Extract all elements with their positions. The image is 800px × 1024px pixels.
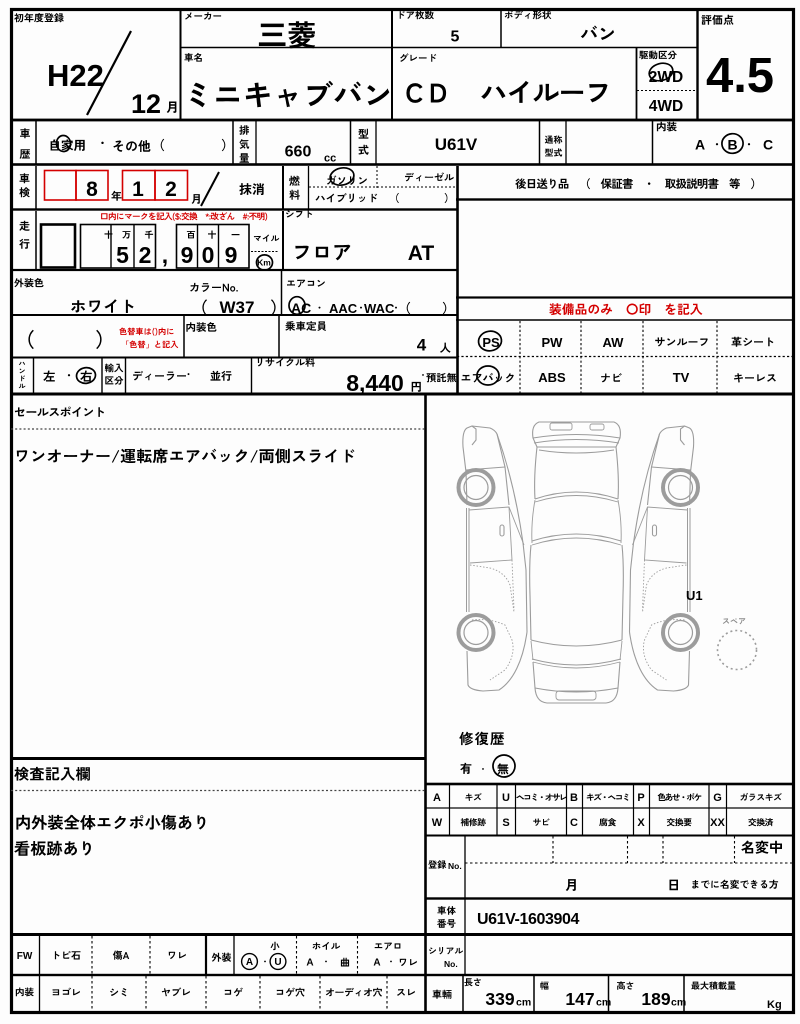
svg-text:8,440: 8,440 — [346, 370, 404, 396]
svg-text:C: C — [763, 137, 773, 153]
svg-text:660: 660 — [285, 144, 312, 161]
svg-text:U61V-1603904: U61V-1603904 — [477, 911, 579, 928]
svg-text:P: P — [637, 792, 644, 804]
svg-text:TV: TV — [673, 370, 690, 385]
svg-text:AT: AT — [408, 242, 435, 265]
svg-text:4.5: 4.5 — [706, 49, 774, 103]
svg-text:1: 1 — [132, 178, 144, 201]
svg-text:A: A — [695, 137, 705, 153]
svg-text:U1: U1 — [686, 588, 703, 603]
svg-text:W37: W37 — [220, 298, 255, 317]
svg-text:ABS: ABS — [538, 370, 566, 385]
svg-text:G: G — [713, 792, 722, 804]
svg-text:cc: cc — [324, 153, 336, 165]
svg-text:S: S — [502, 817, 509, 829]
svg-text:W: W — [432, 817, 443, 829]
svg-text:339: 339 — [485, 989, 514, 1009]
svg-text:2: 2 — [139, 242, 152, 268]
svg-text:A: A — [433, 792, 441, 804]
svg-text:X: X — [637, 817, 645, 829]
svg-text:4WD: 4WD — [649, 98, 683, 115]
svg-text:U: U — [502, 792, 510, 804]
svg-text:No.: No. — [444, 959, 458, 969]
svg-text:5: 5 — [116, 242, 129, 268]
svg-text:cm: cm — [516, 997, 531, 1009]
svg-text:FW: FW — [17, 951, 33, 962]
svg-text:C: C — [570, 817, 578, 829]
svg-text:4: 4 — [417, 336, 427, 355]
svg-text:0: 0 — [202, 242, 215, 268]
svg-text:AAC: AAC — [329, 301, 358, 316]
svg-text:Kg: Kg — [767, 999, 782, 1011]
svg-text:A: A — [373, 958, 380, 969]
svg-text:PW: PW — [542, 335, 564, 350]
svg-text:B: B — [570, 792, 578, 804]
svg-text:2: 2 — [165, 178, 177, 201]
svg-text:U: U — [274, 957, 281, 968]
svg-text:Km: Km — [257, 258, 271, 268]
svg-text:189: 189 — [641, 989, 670, 1009]
svg-text:H22: H22 — [47, 58, 104, 93]
svg-text:9: 9 — [181, 242, 194, 268]
svg-text:,: , — [162, 242, 168, 268]
svg-text:147: 147 — [565, 989, 594, 1009]
svg-text:A: A — [246, 957, 253, 968]
svg-text:AW: AW — [603, 335, 625, 350]
svg-text:B: B — [727, 137, 737, 153]
svg-text:cm: cm — [596, 997, 611, 1009]
svg-text:WAC: WAC — [364, 301, 395, 316]
svg-text:A: A — [306, 958, 313, 969]
svg-text:XX: XX — [710, 817, 725, 829]
svg-text:U61V: U61V — [435, 135, 478, 154]
svg-text:12: 12 — [131, 89, 161, 119]
svg-text:5: 5 — [451, 29, 460, 46]
svg-text:9: 9 — [225, 242, 238, 268]
svg-text:8: 8 — [86, 178, 98, 201]
svg-text:No.: No. — [448, 861, 462, 871]
svg-text:2WD: 2WD — [649, 69, 683, 86]
svg-text:cm: cm — [671, 997, 686, 1009]
